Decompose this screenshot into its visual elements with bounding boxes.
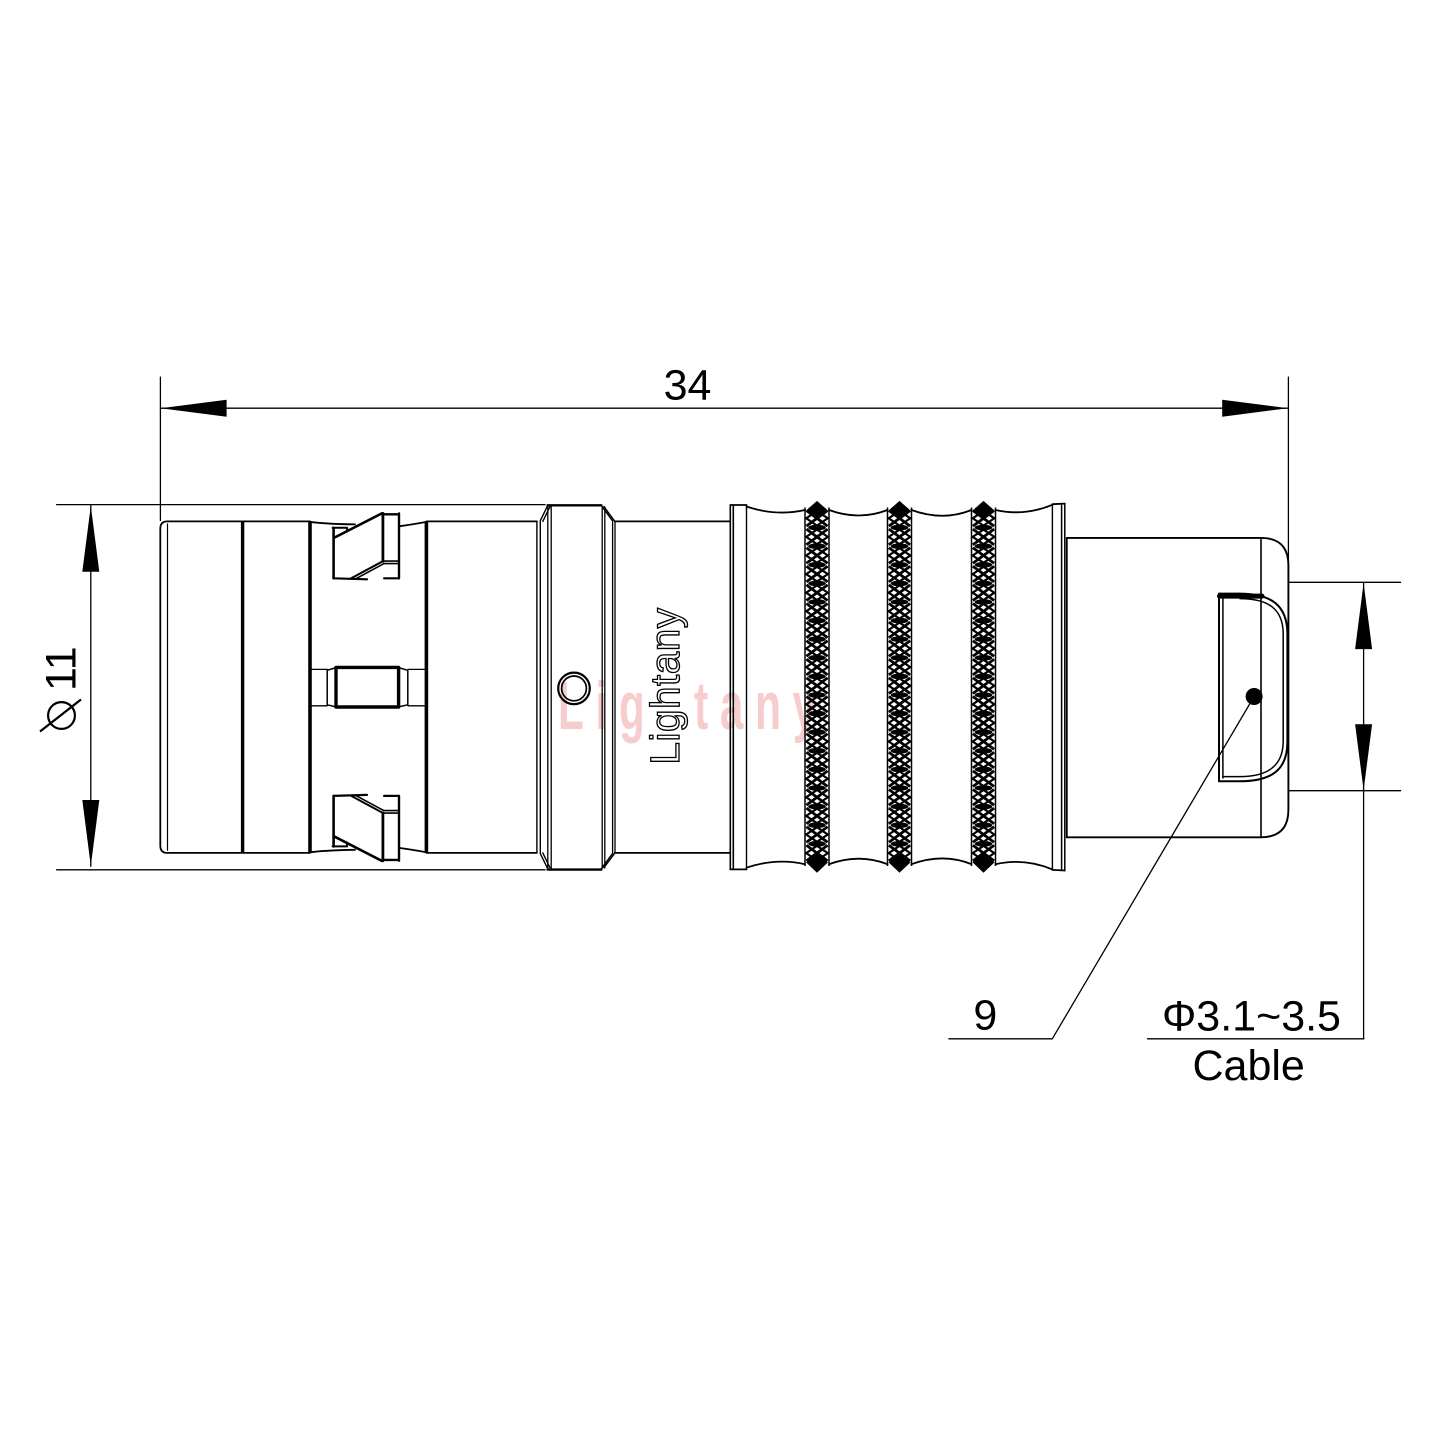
svg-text:Φ3.1~3.5: Φ3.1~3.5 xyxy=(1162,993,1341,1041)
svg-text:11: 11 xyxy=(38,646,86,691)
svg-text:Lightany: Lightany xyxy=(642,607,688,764)
svg-text:9: 9 xyxy=(973,991,997,1039)
svg-text:34: 34 xyxy=(664,362,712,410)
svg-text:Cable: Cable xyxy=(1193,1042,1305,1090)
svg-text:Lightany: Lightany xyxy=(558,668,828,744)
